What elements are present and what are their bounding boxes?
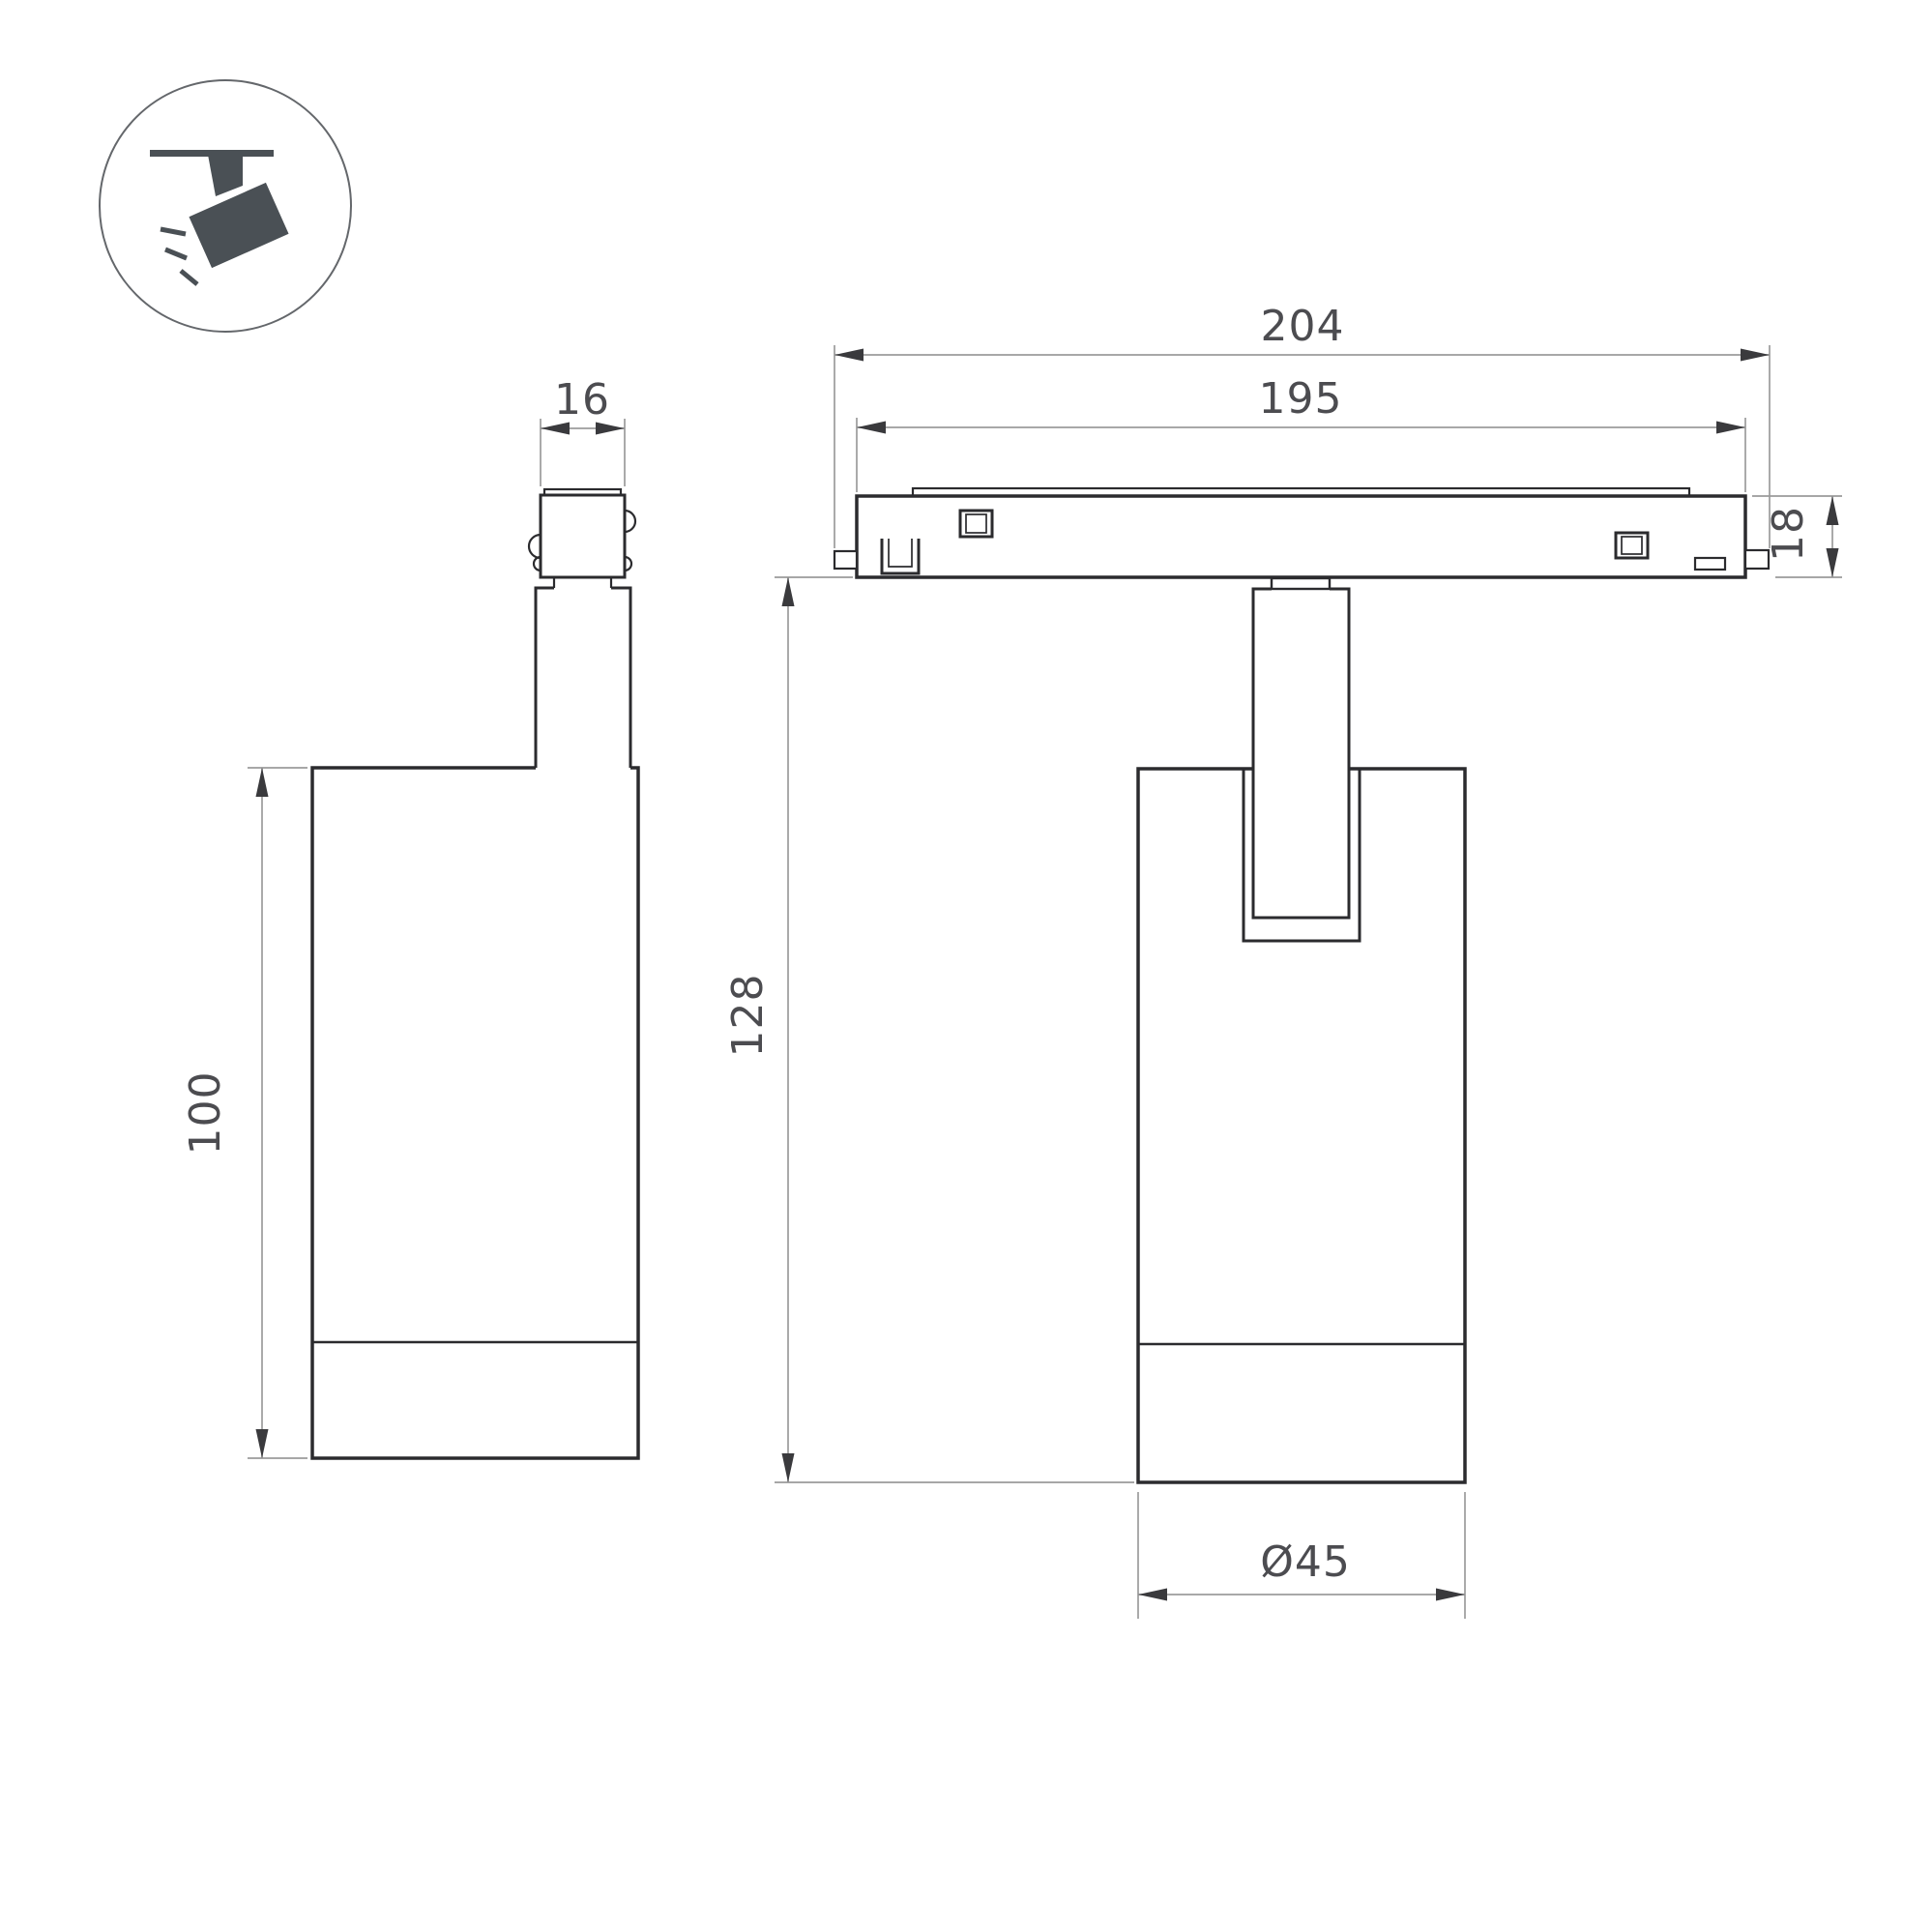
- drawing-canvas: 204 195 16 100 128 18: [0, 0, 1932, 1932]
- adapter-contact-right: [625, 511, 635, 532]
- stem-collar: [1272, 578, 1330, 589]
- yoke-slot: [1244, 769, 1360, 941]
- arrowhead-bottom: [256, 1429, 269, 1458]
- side-view: [312, 489, 638, 1458]
- icon-mount-stem: [208, 155, 243, 196]
- dimension-100: 100: [181, 768, 307, 1458]
- arrowhead-top: [782, 577, 795, 606]
- arrowhead-bottom: [1827, 548, 1839, 577]
- track-end-tab-right: [1745, 550, 1769, 569]
- technical-drawing: 204 195 16 100 128 18: [0, 0, 1932, 1932]
- arrowhead-right: [1741, 349, 1770, 362]
- track-adapter: [541, 495, 625, 577]
- adapter-contact-left: [529, 535, 541, 558]
- dimension-128: 128: [723, 577, 1134, 1482]
- body-outline: [1138, 769, 1465, 1482]
- extension-lines: [248, 768, 307, 1458]
- arrowhead-left: [857, 422, 886, 434]
- body-outline: [312, 768, 638, 1458]
- arrowhead-top: [256, 768, 269, 797]
- dimension-45: Ø45: [1138, 1492, 1465, 1619]
- extension-lines: [857, 418, 1745, 492]
- stem-outline: [1253, 589, 1349, 918]
- arrowhead-top: [1827, 496, 1839, 525]
- arrowhead-right: [1436, 1589, 1465, 1601]
- dimension-label: 195: [1259, 374, 1343, 424]
- stem-outline: [536, 588, 630, 768]
- arrowhead-left: [1138, 1589, 1167, 1601]
- icon-lamp-body: [189, 183, 288, 268]
- icon-light-rays: [161, 229, 197, 284]
- arrowhead-left: [834, 349, 864, 362]
- dimension-16: 16: [541, 375, 625, 486]
- dimension-label: 18: [1764, 506, 1813, 562]
- adapter-neck: [554, 577, 611, 588]
- dimension-label: 204: [1261, 302, 1345, 351]
- dimension-label: 16: [554, 375, 610, 424]
- dimension-label: 128: [723, 974, 773, 1058]
- ceiling-track-spotlight-icon: [100, 80, 351, 332]
- front-view: [834, 488, 1769, 1482]
- extension-lines: [775, 577, 1134, 1482]
- dimension-label: Ø45: [1260, 1537, 1351, 1587]
- dimension-label: 100: [181, 1071, 230, 1156]
- dimension-195: 195: [857, 374, 1745, 492]
- arrowhead-bottom: [782, 1453, 795, 1482]
- arrowhead-right: [1716, 422, 1745, 434]
- track-end-tab-left: [834, 551, 857, 569]
